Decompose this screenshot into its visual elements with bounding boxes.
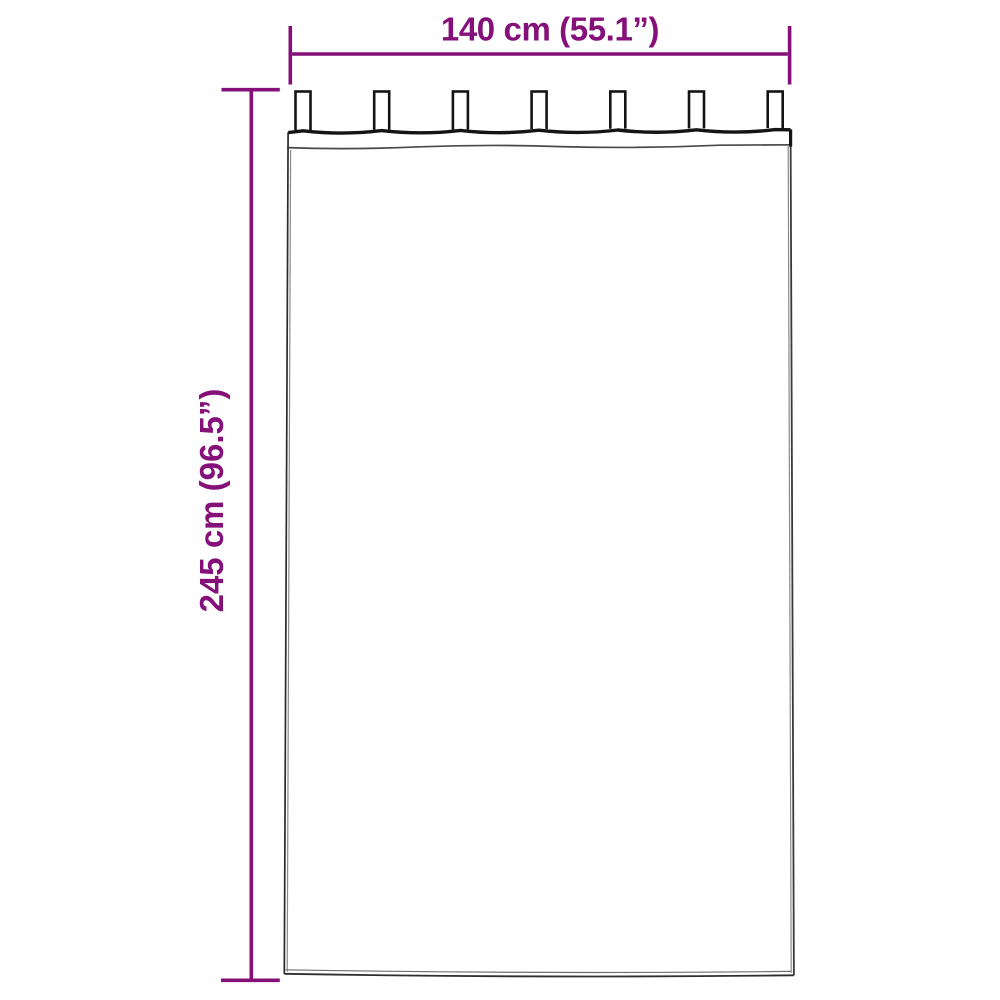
svg-text:140 cm (55.1”): 140 cm (55.1”) <box>441 11 659 48</box>
svg-text:245 cm (96.5”): 245 cm (96.5”) <box>193 389 230 613</box>
